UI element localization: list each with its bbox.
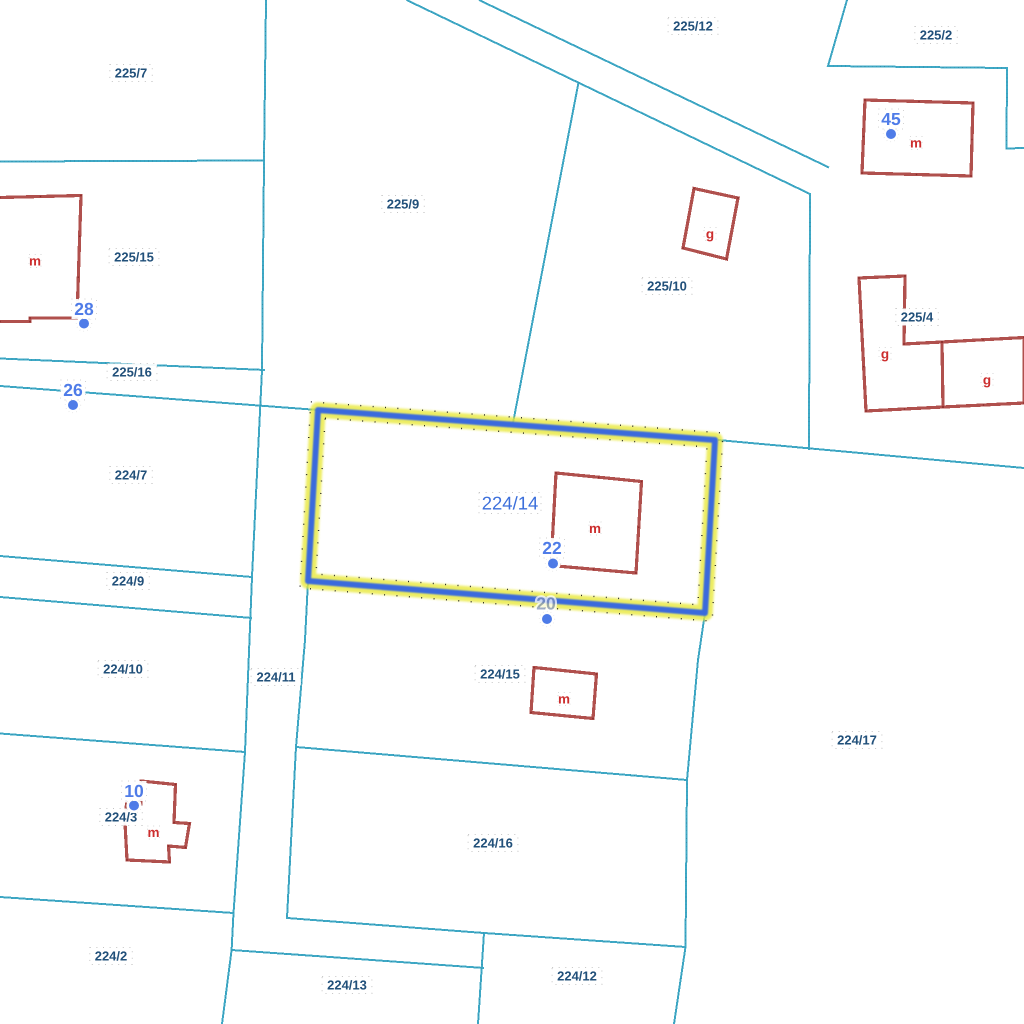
svg-text:224/10: 224/10 — [103, 662, 143, 677]
svg-text:g: g — [983, 373, 991, 388]
svg-text:225/12: 225/12 — [673, 19, 713, 34]
svg-text:224/17: 224/17 — [837, 733, 877, 748]
svg-text:224/12: 224/12 — [557, 969, 597, 984]
svg-text:224/11: 224/11 — [256, 670, 295, 685]
svg-text:20: 20 — [536, 594, 556, 614]
svg-text:m: m — [910, 136, 922, 151]
svg-text:m: m — [147, 825, 159, 840]
svg-text:g: g — [881, 347, 889, 362]
svg-text:224/15: 224/15 — [480, 667, 520, 682]
svg-text:28: 28 — [74, 299, 94, 319]
svg-text:m: m — [558, 692, 570, 707]
svg-text:45: 45 — [881, 109, 901, 129]
svg-text:225/2: 225/2 — [920, 28, 953, 43]
svg-text:224/16: 224/16 — [473, 836, 513, 851]
svg-text:225/9: 225/9 — [387, 197, 420, 212]
svg-text:22: 22 — [542, 538, 562, 558]
svg-text:225/15: 225/15 — [114, 250, 154, 265]
svg-text:g: g — [706, 227, 714, 242]
svg-text:224/9: 224/9 — [112, 574, 145, 589]
svg-text:225/16: 225/16 — [112, 365, 152, 380]
svg-text:225/10: 225/10 — [647, 279, 687, 294]
svg-text:10: 10 — [124, 781, 144, 801]
svg-text:224/7: 224/7 — [115, 468, 148, 483]
svg-text:m: m — [29, 254, 41, 269]
svg-text:26: 26 — [63, 380, 83, 400]
svg-text:m: m — [589, 521, 601, 536]
svg-text:225/7: 225/7 — [115, 66, 148, 81]
svg-text:225/4: 225/4 — [901, 310, 934, 325]
svg-text:224/2: 224/2 — [95, 949, 128, 964]
svg-text:224/14: 224/14 — [482, 493, 539, 514]
svg-text:224/13: 224/13 — [327, 978, 367, 993]
